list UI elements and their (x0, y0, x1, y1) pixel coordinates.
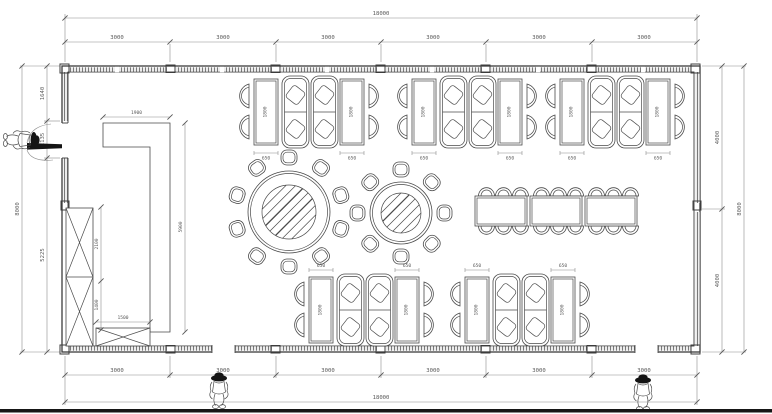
dim-left-seg: 1640 (40, 87, 46, 100)
dim-top-seg: 3000 (426, 35, 439, 41)
dim-right-seg: 4000 (715, 131, 721, 144)
dimension-top: 18000 3000 3000 3000 3000 3000 3000 (62, 11, 699, 62)
floor-plan-drawing: 18000 3000 3000 3000 3000 3000 3000 3000… (0, 0, 772, 414)
booth-group (240, 76, 379, 148)
dim-bottom-seg: 3000 (321, 368, 334, 374)
booth-group (451, 274, 590, 346)
dim-booth-width: 650 (473, 263, 482, 269)
dim-booth-table: 1800 (474, 304, 480, 315)
dim-booth-width: 650 (403, 263, 412, 269)
banquet-table (530, 196, 582, 226)
dim-bottom-seg: 3000 (637, 368, 650, 374)
dim-counter-top: 1900 (131, 110, 142, 116)
dim-booth-width: 650 (568, 156, 577, 162)
banquet-table (475, 196, 527, 226)
dim-booth-width: 650 (420, 156, 429, 162)
person-icon (634, 374, 652, 410)
dim-booth-table: 1800 (560, 304, 566, 315)
dim-bottom-overall: 18000 (373, 395, 390, 401)
dim-booth-width: 650 (654, 156, 663, 162)
booth-row-top: 1800 1800 1800 1800 1800 1800 650 650 65… (240, 76, 685, 162)
round-table-large (228, 150, 351, 274)
dim-top-seg: 3000 (216, 35, 229, 41)
booth-group (398, 76, 537, 148)
dimension-right: 4000 4000 8000 (702, 63, 747, 354)
round-table-small (350, 162, 452, 264)
dim-booth-table: 1800 (655, 106, 661, 117)
dimension-left: 1640 1135 5225 8000 (15, 63, 60, 354)
dim-counter-length: 5900 (178, 221, 184, 232)
door-opening-bottom-left (212, 345, 235, 354)
dim-booth-table: 1800 (318, 304, 324, 315)
dim-booth-width: 650 (348, 156, 357, 162)
bottom-edge-bar (0, 409, 772, 413)
dim-left-overall: 8000 (15, 202, 21, 215)
dim-top-overall: 18000 (373, 11, 390, 17)
dim-booth-table: 1800 (507, 106, 513, 117)
dim-booth-table: 1800 (569, 106, 575, 117)
door-opening-bottom-right (635, 345, 658, 354)
floor-plan-page: 18000 3000 3000 3000 3000 3000 3000 3000… (0, 0, 772, 414)
dim-bottom-seg: 3000 (110, 368, 123, 374)
booth-group (546, 76, 685, 148)
dim-top-seg: 3000 (321, 35, 334, 41)
person-icon (3, 131, 39, 149)
booth-group (295, 274, 434, 346)
service-counter (103, 123, 170, 332)
dim-cabinet-upper: 2100 (94, 238, 100, 249)
dim-bottom-seg: 3000 (426, 368, 439, 374)
dim-cabinet-lower: 1400 (94, 299, 100, 310)
dim-top-seg: 3000 (532, 35, 545, 41)
service-counter-area: 1900 5900 2100 1400 1500 (66, 110, 188, 346)
dim-booth-width: 650 (559, 263, 568, 269)
banquet-table-row (475, 188, 639, 235)
dim-booth-table: 1800 (263, 106, 269, 117)
dim-booth-width: 650 (506, 156, 515, 162)
dim-right-overall: 8000 (737, 202, 743, 215)
dim-bottom-seg: 3000 (532, 368, 545, 374)
dim-booth-table: 1800 (404, 304, 410, 315)
dim-top-seg: 3000 (110, 35, 123, 41)
banquet-table (585, 196, 637, 226)
dim-booth-table: 1800 (349, 106, 355, 117)
booth-row-bottom: 1800 1800 1800 1800 650 650 650 650 (295, 263, 590, 346)
dim-booth-table: 1800 (421, 106, 427, 117)
dim-booth-width: 650 (262, 156, 271, 162)
person-icon (210, 372, 228, 408)
dim-right-seg: 4000 (715, 274, 721, 287)
dim-left-seg: 5225 (40, 248, 46, 261)
dim-base-cabinet: 1500 (117, 315, 128, 321)
dim-top-seg: 3000 (637, 35, 650, 41)
dim-booth-width: 650 (317, 263, 326, 269)
dimension-bottom: 3000 3000 3000 3000 3000 3000 18000 (62, 356, 699, 405)
